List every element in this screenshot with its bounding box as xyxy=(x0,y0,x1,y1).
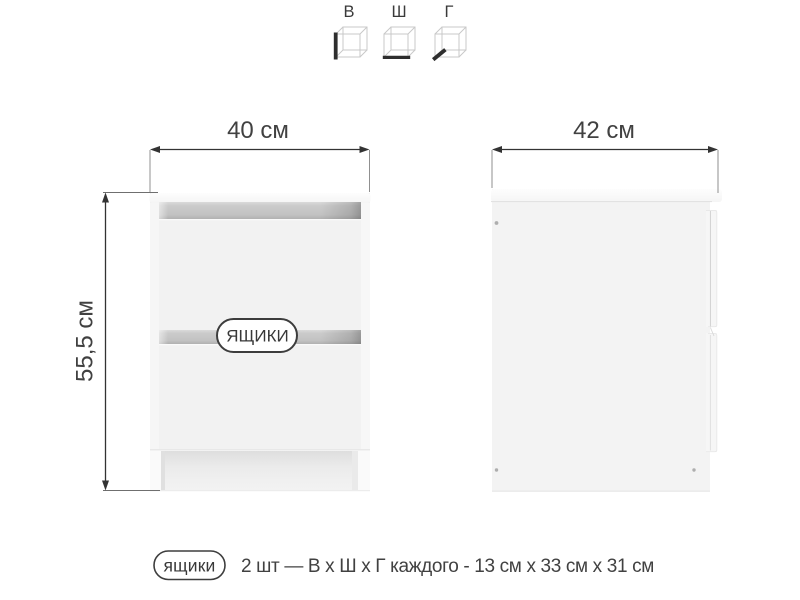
svg-text:40 см: 40 см xyxy=(227,117,289,144)
svg-text:55,5 см: 55,5 см xyxy=(72,300,99,382)
svg-text:Ш: Ш xyxy=(391,3,406,21)
svg-text:В: В xyxy=(343,3,354,21)
svg-text:Г: Г xyxy=(445,3,454,21)
svg-text:ящики: ящики xyxy=(163,556,215,576)
svg-text:ЯЩИКИ: ЯЩИКИ xyxy=(226,327,289,346)
svg-text:2 шт — В х Ш х Г каждого - 13: 2 шт — В х Ш х Г каждого - 13 см х 33 см… xyxy=(241,556,654,577)
svg-text:42 см: 42 см xyxy=(573,117,635,144)
